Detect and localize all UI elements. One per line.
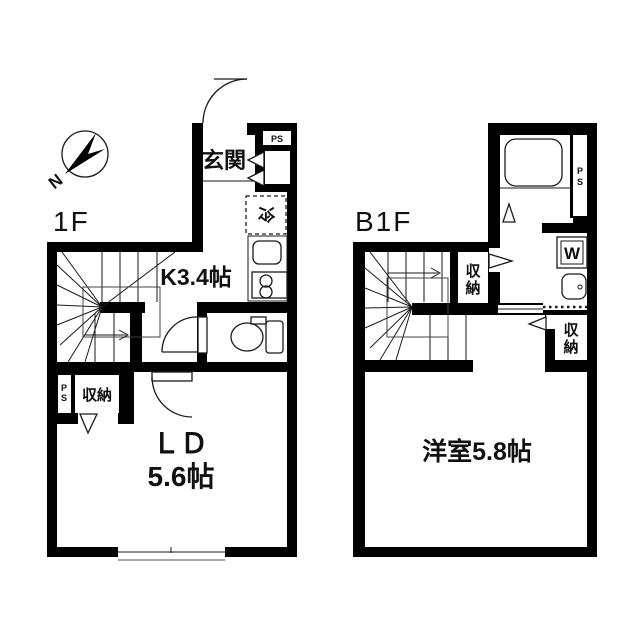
floor-plan-drawing: 冷 [0,0,640,640]
stair-direction-arrow-b1f [388,268,440,278]
ps-left-s: S [61,393,67,403]
fridge-label: 冷 [256,207,276,224]
entrance-label: 玄関 [202,148,246,173]
floor-plan-page: 冷 [0,0,640,640]
storage1-label-c2: 納 [465,279,480,297]
ps-label-top: PS [271,134,283,144]
ps-b1f-p: P [577,166,583,176]
storage1-label-c1: 収 [465,262,481,280]
compass-needle [65,133,105,174]
storage2-label-c1: 収 [563,321,579,339]
compass: N [45,131,108,193]
western-room-label: 洋室5.8帖 [422,437,532,466]
storage-label-1f: 収納 [82,386,112,404]
washroom-door-mark [489,254,512,268]
kitchen-counter [248,236,287,301]
ps-left-p: P [61,383,67,393]
storage2-label-c2: 納 [563,338,578,356]
toilet-fixture [231,317,283,353]
stair-direction-arrow-1f [85,330,128,340]
bathtub [505,139,562,186]
ld-door-swing [152,372,192,417]
refrigerator-symbol: 冷 [246,196,286,234]
floor-label-1f: 1F [53,206,90,237]
ld-label: ＬＤ [152,428,208,459]
floor-label-b1f: B1F [355,206,412,237]
ps-b1f-s: S [577,177,583,187]
floor-b1f-plan: B1F 洋室5.8帖 収 納 収 納 W P S [353,123,597,557]
ld-size-label: 5.6帖 [148,461,215,492]
bathroom-door-mark [503,204,515,222]
toilet-room [162,317,283,353]
kitchen-label: K3.4帖 [160,264,232,290]
compass-north-label: N [45,170,66,193]
washer-label: W [564,244,581,263]
bathroom [500,139,570,222]
closet2-door-mark [529,317,546,330]
